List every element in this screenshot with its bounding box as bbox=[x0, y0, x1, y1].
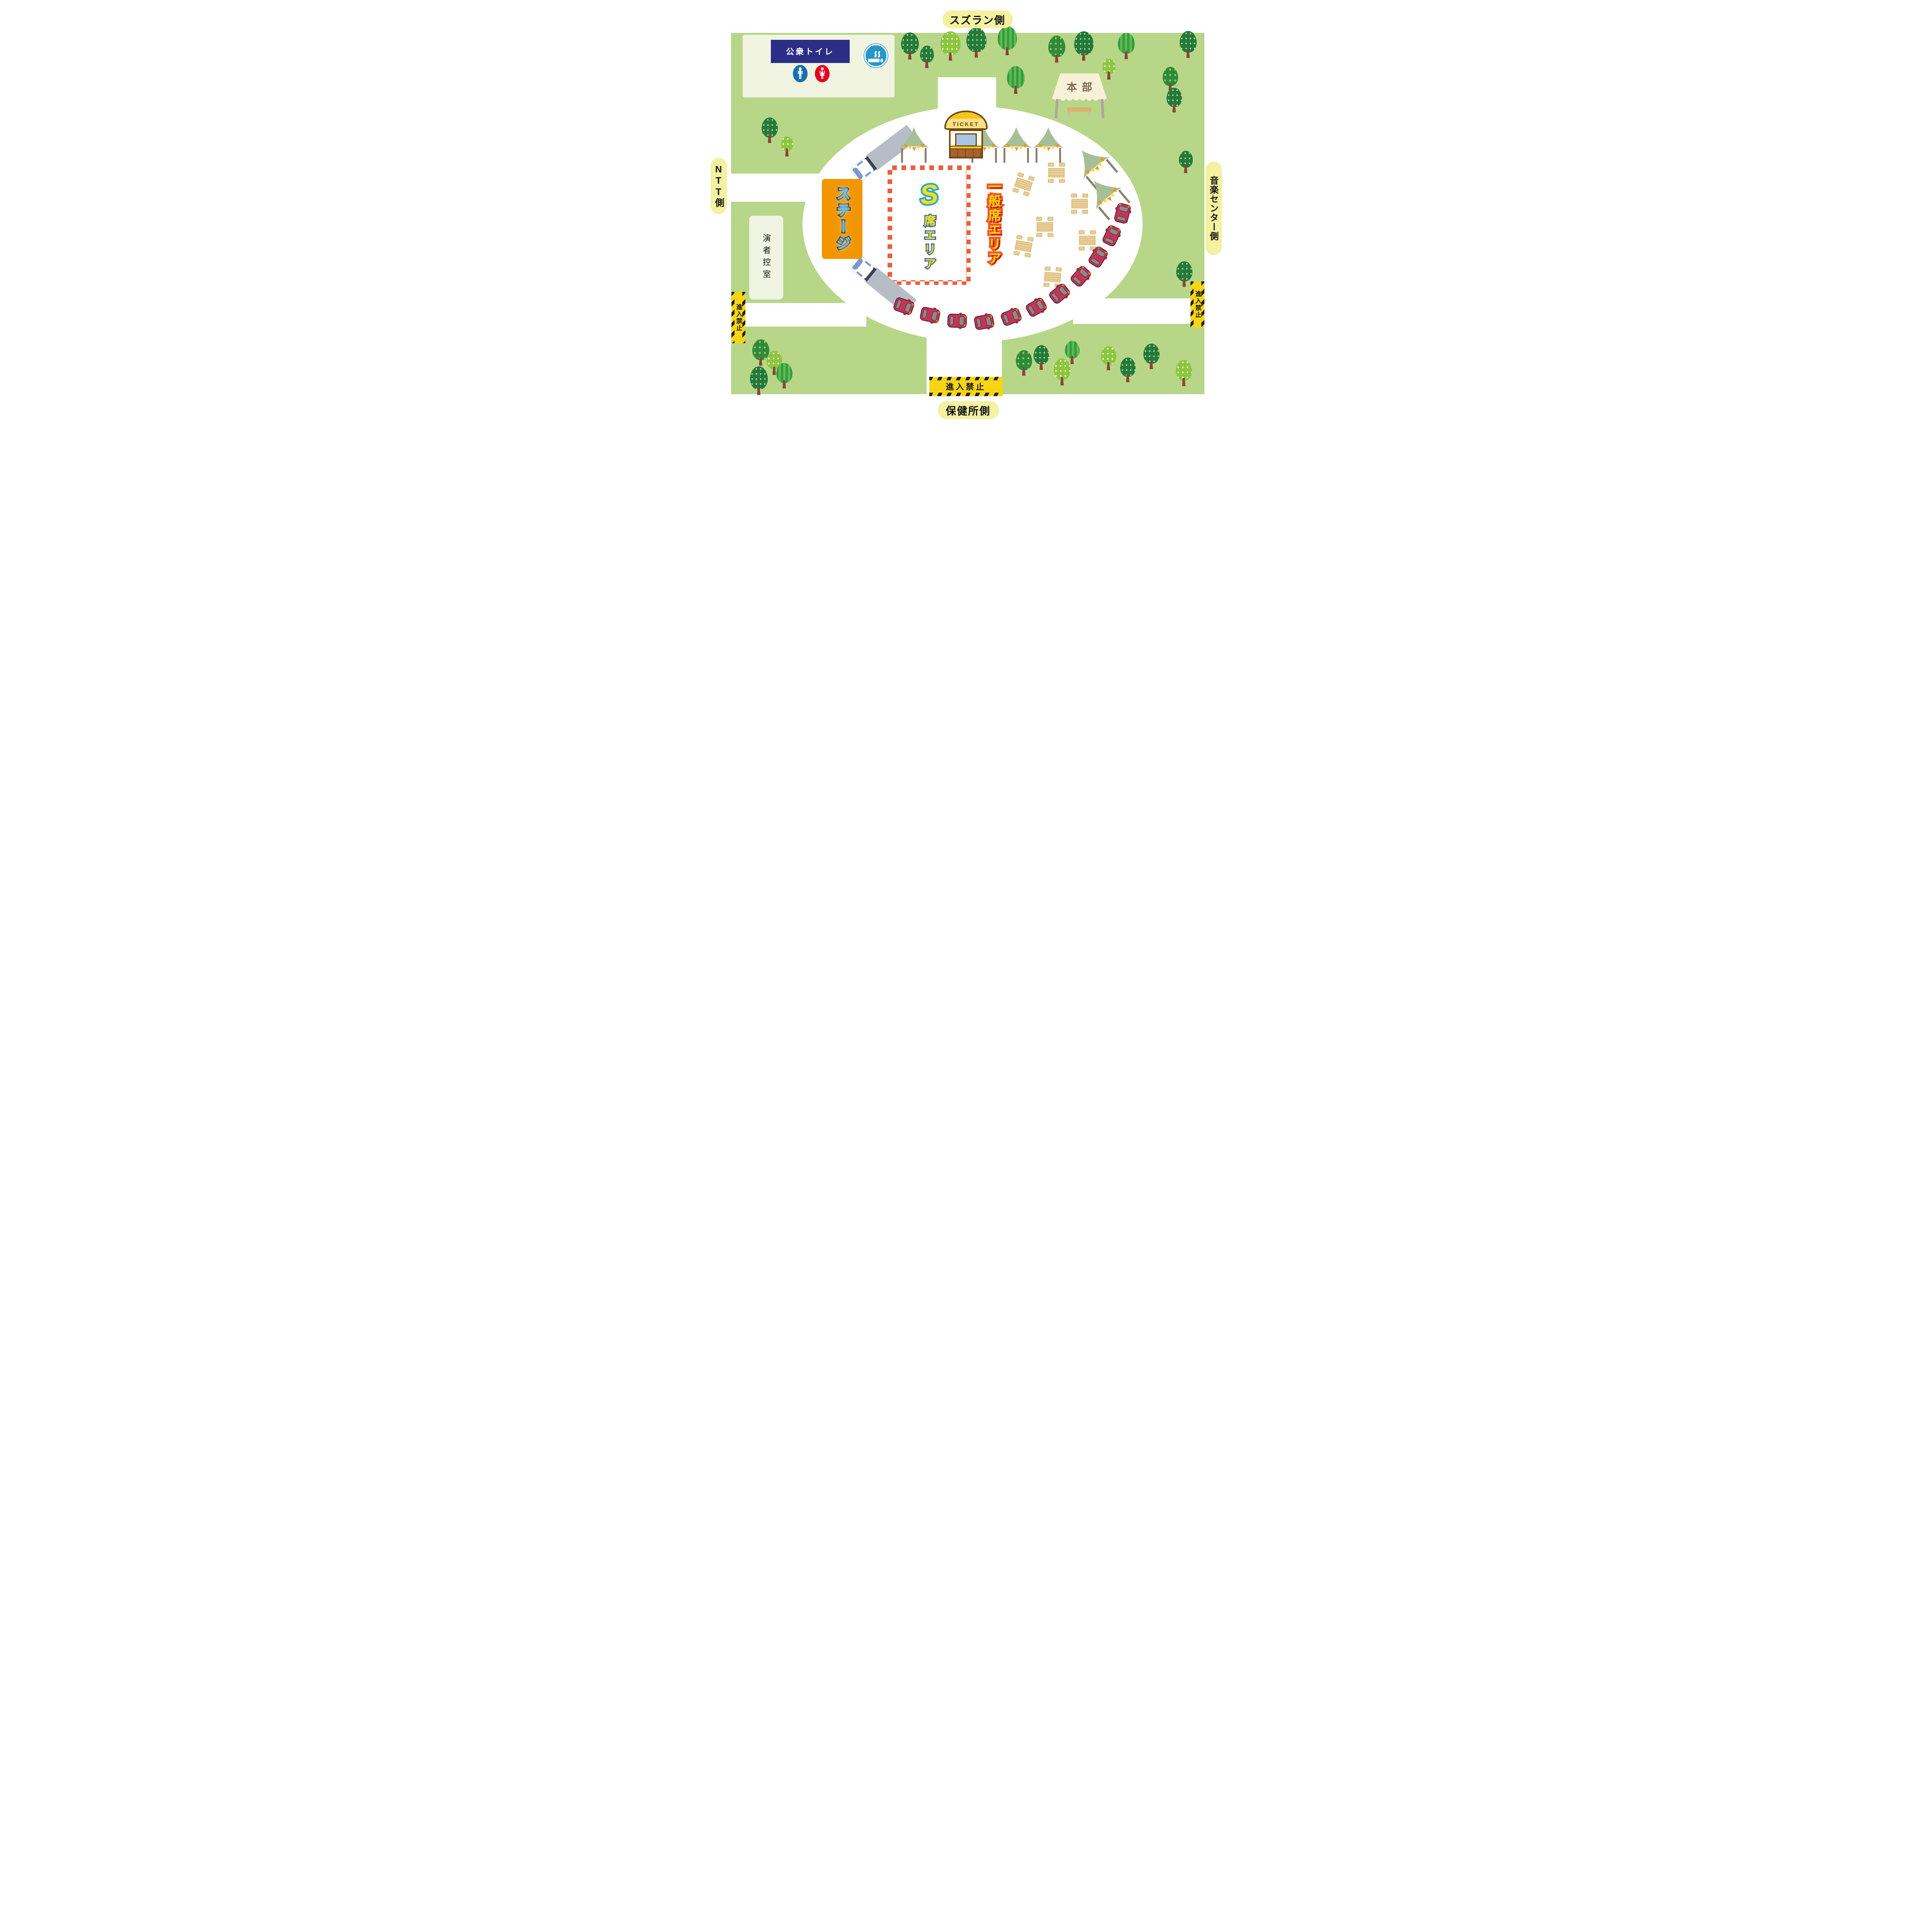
tree-crown bbox=[1074, 31, 1094, 55]
no-entry-text: 進入禁止 bbox=[734, 304, 743, 332]
bunting-flag-icon bbox=[921, 144, 925, 148]
tree-icon bbox=[781, 136, 793, 151]
bench bbox=[1044, 267, 1051, 271]
bench bbox=[1043, 283, 1049, 287]
bench bbox=[1016, 235, 1023, 240]
bench bbox=[1071, 210, 1077, 214]
picnic-table-set bbox=[1013, 235, 1034, 257]
no-entry-sign-east: 進入禁止 bbox=[1190, 281, 1204, 328]
general-seat-label: 一般席エリア bbox=[985, 180, 1003, 266]
picnic-table-set bbox=[1071, 194, 1088, 214]
tree-icon bbox=[776, 363, 793, 383]
ticket-booth: TICKET bbox=[946, 111, 986, 158]
bench bbox=[1090, 230, 1096, 234]
tree-crown bbox=[1180, 31, 1197, 53]
tree-crown bbox=[1120, 358, 1136, 377]
table bbox=[1037, 222, 1053, 232]
bench bbox=[1082, 210, 1088, 214]
tree-icon bbox=[762, 117, 778, 138]
tree-icon bbox=[1179, 151, 1193, 168]
female-pictogram bbox=[818, 67, 826, 81]
tree-crown bbox=[1118, 33, 1135, 54]
bench bbox=[1059, 179, 1065, 183]
s-seat-area-inner: S 席エリア bbox=[892, 170, 966, 280]
tree-crown bbox=[940, 31, 961, 55]
car-mirror bbox=[959, 327, 961, 329]
performer-room-label: 演者控室 bbox=[760, 234, 772, 282]
vendor-tent-icon bbox=[1000, 126, 1032, 163]
tree-crown bbox=[776, 363, 793, 383]
smoking-pictogram bbox=[864, 43, 888, 68]
bench bbox=[1027, 237, 1034, 242]
bunting-flag-icon bbox=[987, 146, 991, 150]
tree-crown bbox=[1054, 358, 1071, 380]
picnic-table-set bbox=[1036, 217, 1054, 237]
hq-leg bbox=[1054, 99, 1058, 118]
no-entry-text: 進入禁止 bbox=[1193, 291, 1202, 318]
male-icon bbox=[793, 65, 808, 82]
car-rear-window bbox=[949, 316, 954, 325]
tree-icon bbox=[1176, 360, 1192, 381]
s-seat-area: S 席エリア bbox=[888, 165, 971, 285]
parked-car-icon bbox=[947, 313, 967, 328]
tree-icon bbox=[920, 46, 934, 63]
label-text: 音楽センター側 bbox=[1207, 176, 1220, 241]
toilet-sign: 公衆トイレ bbox=[771, 40, 850, 63]
car-mirror bbox=[959, 313, 962, 314]
tree-crown bbox=[1007, 66, 1025, 89]
label-text: NTT側 bbox=[712, 164, 725, 208]
toilet-sign-text: 公衆トイレ bbox=[786, 46, 834, 57]
bench bbox=[1048, 179, 1054, 183]
car-headlight bbox=[964, 324, 966, 327]
hq-bench-leg bbox=[1088, 112, 1090, 117]
bunting-flag-icon bbox=[1055, 144, 1059, 148]
bench bbox=[1082, 194, 1088, 197]
bench bbox=[1056, 267, 1062, 272]
bench bbox=[1071, 194, 1077, 197]
tree-crown bbox=[998, 26, 1017, 50]
label-music-center-side: 音楽センター側 bbox=[1206, 162, 1222, 255]
tree-crown bbox=[1143, 344, 1160, 364]
tree-crown bbox=[1176, 261, 1192, 281]
truck-side-window bbox=[864, 171, 871, 177]
car-headlight bbox=[964, 316, 966, 318]
smoking-area-icon bbox=[864, 43, 888, 68]
s-seat-letter: S bbox=[918, 178, 940, 210]
no-entry-banner-south: 進入禁止 bbox=[929, 377, 1003, 396]
tree-icon bbox=[1118, 33, 1135, 54]
ticket-body bbox=[949, 129, 983, 158]
tree-icon bbox=[750, 366, 768, 390]
table bbox=[1044, 272, 1061, 283]
bunting-flag-icon bbox=[908, 146, 912, 150]
stage: ステージ bbox=[822, 179, 862, 259]
hq-label: 本部 bbox=[1062, 79, 1097, 94]
bunting-flag-icon bbox=[1038, 144, 1042, 148]
bunting-flag-icon bbox=[1019, 146, 1023, 150]
tree-icon bbox=[901, 32, 919, 54]
tree-crown bbox=[1101, 346, 1116, 365]
picnic-table-set bbox=[1048, 163, 1065, 183]
tree-icon bbox=[1102, 59, 1116, 74]
tree-crown bbox=[1048, 36, 1065, 57]
tree-icon bbox=[1007, 66, 1025, 89]
table bbox=[1048, 168, 1065, 177]
bunting-flag-icon bbox=[1023, 144, 1027, 148]
bench bbox=[1036, 233, 1042, 237]
bench bbox=[1036, 217, 1042, 221]
bunting-flag-icon bbox=[1010, 146, 1014, 150]
performer-waiting-room: 演者控室 bbox=[749, 216, 783, 300]
truck-side-window bbox=[856, 271, 862, 277]
bench bbox=[1059, 163, 1065, 167]
ticket-counter bbox=[951, 146, 981, 149]
tree-icon bbox=[1034, 345, 1049, 364]
label-text: スズラン側 bbox=[949, 12, 1005, 27]
bunting-flag-icon bbox=[917, 146, 920, 150]
tree-crown bbox=[966, 27, 986, 52]
bench bbox=[1079, 247, 1085, 250]
label-text: 保健所側 bbox=[946, 403, 991, 418]
picnic-table-set bbox=[1078, 230, 1096, 250]
headquarters-tent: 本部 bbox=[1052, 73, 1107, 119]
general-seat-area: 一般席エリア bbox=[980, 175, 1008, 271]
bunting-flag-icon bbox=[904, 144, 908, 148]
label-hokenjo-side: 保健所側 bbox=[938, 401, 999, 419]
truck-side-window bbox=[864, 261, 871, 267]
bunting-flag-icon bbox=[991, 144, 995, 148]
bunting-flag-icon bbox=[912, 147, 916, 151]
bench bbox=[1079, 230, 1085, 234]
male-pictogram bbox=[796, 67, 804, 81]
hq-leg bbox=[1100, 99, 1104, 118]
road-west-upper bbox=[731, 174, 830, 202]
tree-crown bbox=[762, 117, 778, 138]
bunting-flag-icon bbox=[1043, 146, 1046, 150]
tree-icon bbox=[1101, 346, 1116, 365]
table bbox=[1079, 236, 1095, 245]
label-suzuran-side: スズラン側 bbox=[942, 10, 1013, 28]
bench bbox=[1048, 163, 1054, 167]
truck-side-window bbox=[856, 160, 863, 166]
bench bbox=[1048, 217, 1053, 221]
table bbox=[1071, 199, 1088, 208]
tree-crown bbox=[1016, 350, 1032, 370]
tree-icon bbox=[1048, 36, 1065, 57]
tree-icon bbox=[1176, 261, 1192, 281]
tree-icon bbox=[998, 26, 1017, 50]
tree-icon bbox=[1180, 31, 1197, 53]
tree-icon bbox=[1054, 358, 1071, 380]
tree-icon bbox=[1074, 31, 1094, 55]
ticket-window bbox=[955, 133, 977, 146]
tree-crown bbox=[1163, 67, 1178, 86]
label-ntt-side: NTT側 bbox=[711, 158, 727, 214]
hq-bench bbox=[1067, 107, 1092, 112]
bunting-flag-icon bbox=[1051, 146, 1055, 150]
ticket-roof: TICKET bbox=[944, 111, 988, 130]
road-west-lower bbox=[731, 303, 866, 327]
tree-crown bbox=[1167, 88, 1182, 107]
public-toilet-block: 公衆トイレ bbox=[743, 35, 895, 97]
bunting-flag-icon bbox=[1015, 147, 1019, 151]
tree-crown bbox=[1034, 345, 1049, 364]
tree-icon bbox=[940, 31, 961, 55]
vendor-tent-icon bbox=[898, 126, 930, 163]
tent-canopy bbox=[1000, 126, 1032, 150]
hq-canopy: 本部 bbox=[1052, 73, 1107, 99]
car-windshield bbox=[959, 316, 964, 325]
bench bbox=[1048, 233, 1053, 237]
stage-label: ステージ bbox=[832, 186, 853, 252]
table bbox=[1015, 240, 1032, 252]
road-east bbox=[1073, 298, 1204, 324]
tree-icon bbox=[966, 27, 986, 52]
bunting-flag-icon bbox=[1006, 144, 1010, 148]
tent-canopy bbox=[1032, 126, 1065, 150]
bunting-flag-icon bbox=[1047, 147, 1051, 151]
hq-bench-leg bbox=[1068, 112, 1070, 117]
vendor-tent-icon bbox=[1032, 126, 1065, 163]
tree-icon bbox=[1163, 67, 1178, 86]
tree-crown bbox=[1176, 360, 1192, 381]
no-entry-text: 進入禁止 bbox=[946, 381, 986, 392]
tree-icon bbox=[1143, 344, 1160, 364]
tree-icon bbox=[1065, 341, 1080, 359]
tree-icon bbox=[1016, 350, 1032, 370]
tree-crown bbox=[750, 366, 768, 390]
tree-icon bbox=[1120, 358, 1136, 377]
ticket-label: TICKET bbox=[952, 121, 979, 128]
festival-venue-map: スズラン側 NTT側 音楽センター側 保健所側 公衆トイレ bbox=[667, 0, 1265, 423]
hq-canopy-scallop bbox=[1053, 98, 1106, 101]
tent-canopy bbox=[898, 126, 930, 150]
tree-crown bbox=[901, 32, 919, 54]
no-entry-sign-west: 進入禁止 bbox=[731, 292, 745, 343]
ticket-base bbox=[951, 149, 981, 157]
s-seat-label: 席エリア bbox=[920, 215, 938, 272]
female-icon bbox=[815, 65, 830, 82]
tree-icon bbox=[1167, 88, 1182, 107]
